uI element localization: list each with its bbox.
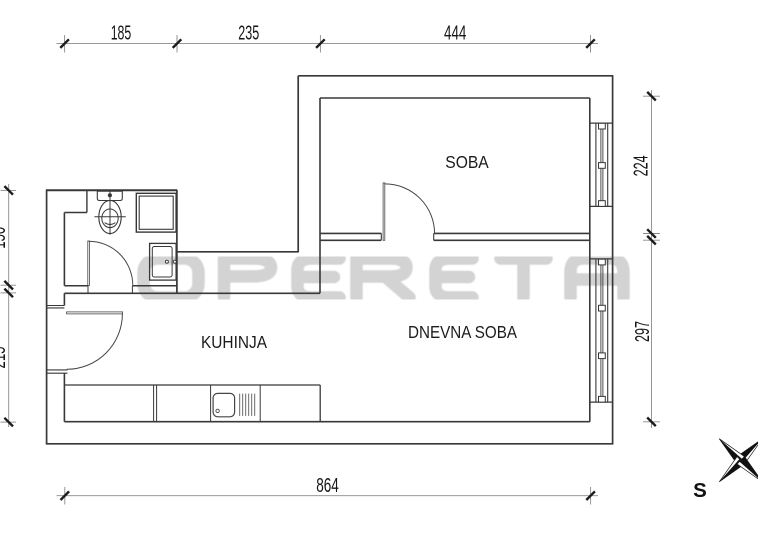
svg-text:864: 864	[316, 475, 339, 497]
svg-text:235: 235	[238, 23, 259, 45]
svg-text:SOBA: SOBA	[445, 152, 489, 172]
svg-text:297: 297	[632, 321, 654, 342]
svg-text:S: S	[693, 479, 707, 502]
svg-text:185: 185	[111, 23, 132, 45]
svg-text:150: 150	[0, 227, 10, 249]
svg-text:DNEVNA SOBA: DNEVNA SOBA	[408, 322, 517, 342]
svg-text:444: 444	[444, 23, 466, 45]
svg-text:215: 215	[0, 347, 10, 369]
svg-text:224: 224	[630, 155, 652, 176]
svg-text:KUHINJA: KUHINJA	[201, 332, 267, 352]
